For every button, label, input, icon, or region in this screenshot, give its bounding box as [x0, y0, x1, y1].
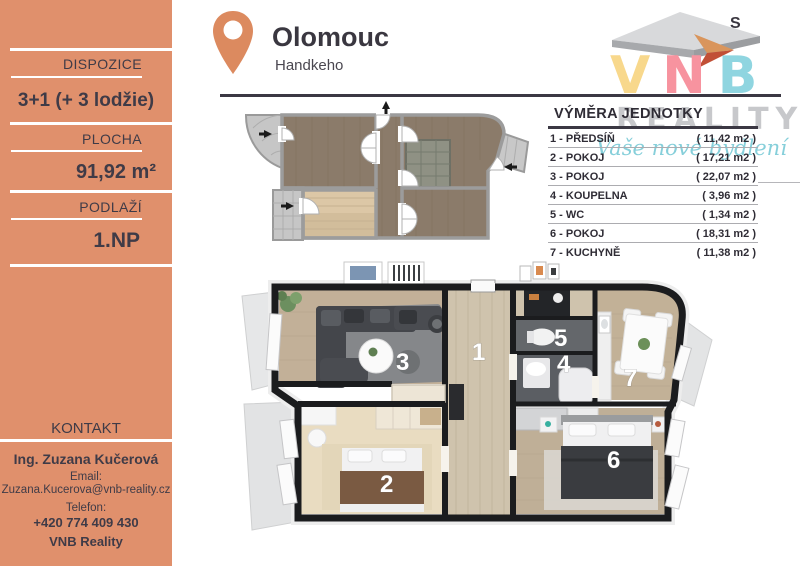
- room-name: 4 - KOUPELNA: [550, 190, 628, 202]
- kontakt-label: KONTAKT: [0, 420, 172, 437]
- phone-label: Telefon:: [0, 502, 172, 514]
- unit-table: VÝMĚRA JEDNOTKY 1 - PŘEDSÍŇ( 11,42 m2 )2…: [548, 104, 758, 261]
- street-subtitle: Handkeho: [275, 57, 343, 74]
- room-number-1: 1: [472, 339, 485, 366]
- divider-line: [0, 439, 172, 442]
- table-row: 4 - KOUPELNA( 3,96 m2 ): [548, 186, 758, 205]
- unit-table-rows: 1 - PŘEDSÍŇ( 11,42 m2 )2 - POKOJ( 17,21 …: [548, 129, 758, 261]
- balcony-top-left: [246, 115, 282, 168]
- dispozice-label: DISPOZICE: [0, 56, 142, 72]
- podlazi-label: PODLAŽÍ: [0, 199, 142, 215]
- divider-line: [10, 190, 172, 193]
- room-area: ( 1,34 m2 ): [702, 209, 756, 221]
- room-name: 7 - KUCHYNĚ: [550, 247, 620, 259]
- company-name: VNB Reality: [0, 534, 172, 549]
- email-label: Email:: [0, 471, 172, 483]
- divider-line: [10, 48, 172, 51]
- room-area: ( 11,42 m2 ): [697, 133, 756, 145]
- room-area: ( 22,07 m2 ): [696, 171, 756, 183]
- sidebar: DISPOZICE 3+1 (+ 3 lodžie) PLOCHA 91,92 …: [0, 0, 172, 566]
- compass-letter: S: [730, 15, 741, 32]
- table-row: 3 - POKOJ( 22,07 m2 ): [548, 167, 758, 186]
- table-row: 7 - KUCHYNĚ( 11,38 m2 ): [548, 243, 758, 261]
- room-number-7: 7: [624, 365, 637, 392]
- table-row: 1 - PŘEDSÍŇ( 11,42 m2 ): [548, 129, 758, 148]
- table-row: 6 - POKOJ( 18,31 m2 ): [548, 224, 758, 243]
- plocha-label: PLOCHA: [0, 131, 142, 147]
- room-name: 3 - POKOJ: [550, 171, 604, 183]
- room-number-4: 4: [557, 351, 571, 378]
- map-pin-icon: [212, 10, 254, 78]
- unit-table-title: VÝMĚRA JEDNOTKY: [548, 104, 758, 129]
- balcony-bottom-left: [273, 190, 303, 240]
- room-number-6: 6: [607, 447, 620, 474]
- city-title: Olomouc: [272, 22, 389, 53]
- label-underline: [11, 76, 142, 78]
- table-row: 5 - WC( 1,34 m2 ): [548, 205, 758, 224]
- label-underline: [11, 218, 142, 220]
- divider-line: [10, 264, 172, 267]
- room-name: 2 - POKOJ: [550, 152, 604, 164]
- flyer-page: { "sidebar": { "bg_color": "#E0906C", "s…: [0, 0, 800, 566]
- room-number-2: 2: [380, 471, 393, 498]
- table-row: 2 - POKOJ( 17,21 m2 ): [548, 148, 758, 167]
- phone-value[interactable]: +420 774 409 430: [0, 515, 172, 530]
- podlazi-value: 1.NP: [0, 229, 172, 253]
- room-area: ( 11,38 m2 ): [697, 247, 756, 259]
- room-area: ( 17,21 m2 ): [696, 152, 756, 164]
- room-area: ( 18,31 m2 ): [696, 228, 756, 240]
- email-value[interactable]: Zuzana.Kucerova@vnb-reality.cz: [0, 484, 172, 496]
- floor-plan-2d: [236, 100, 532, 256]
- room-name: 5 - WC: [550, 209, 584, 221]
- room-number-5: 5: [554, 325, 567, 352]
- row-divider-extension: [758, 182, 800, 183]
- contact-name: Ing. Zuzana Kučerová: [0, 451, 172, 467]
- dispozice-value: 3+1 (+ 3 lodžie): [0, 90, 172, 112]
- floor-plan-3d: 1 2 3 4 5 6 7: [224, 254, 724, 550]
- room-area: ( 3,96 m2 ): [702, 190, 756, 202]
- label-underline: [11, 150, 142, 152]
- room-name: 6 - POKOJ: [550, 228, 604, 240]
- header-divider: [220, 94, 781, 97]
- room-name: 1 - PŘEDSÍŇ: [550, 133, 615, 145]
- room-number-3: 3: [396, 349, 409, 376]
- plocha-value: 91,92 m²: [0, 161, 172, 184]
- hall-console: [449, 384, 464, 420]
- divider-line: [10, 122, 172, 125]
